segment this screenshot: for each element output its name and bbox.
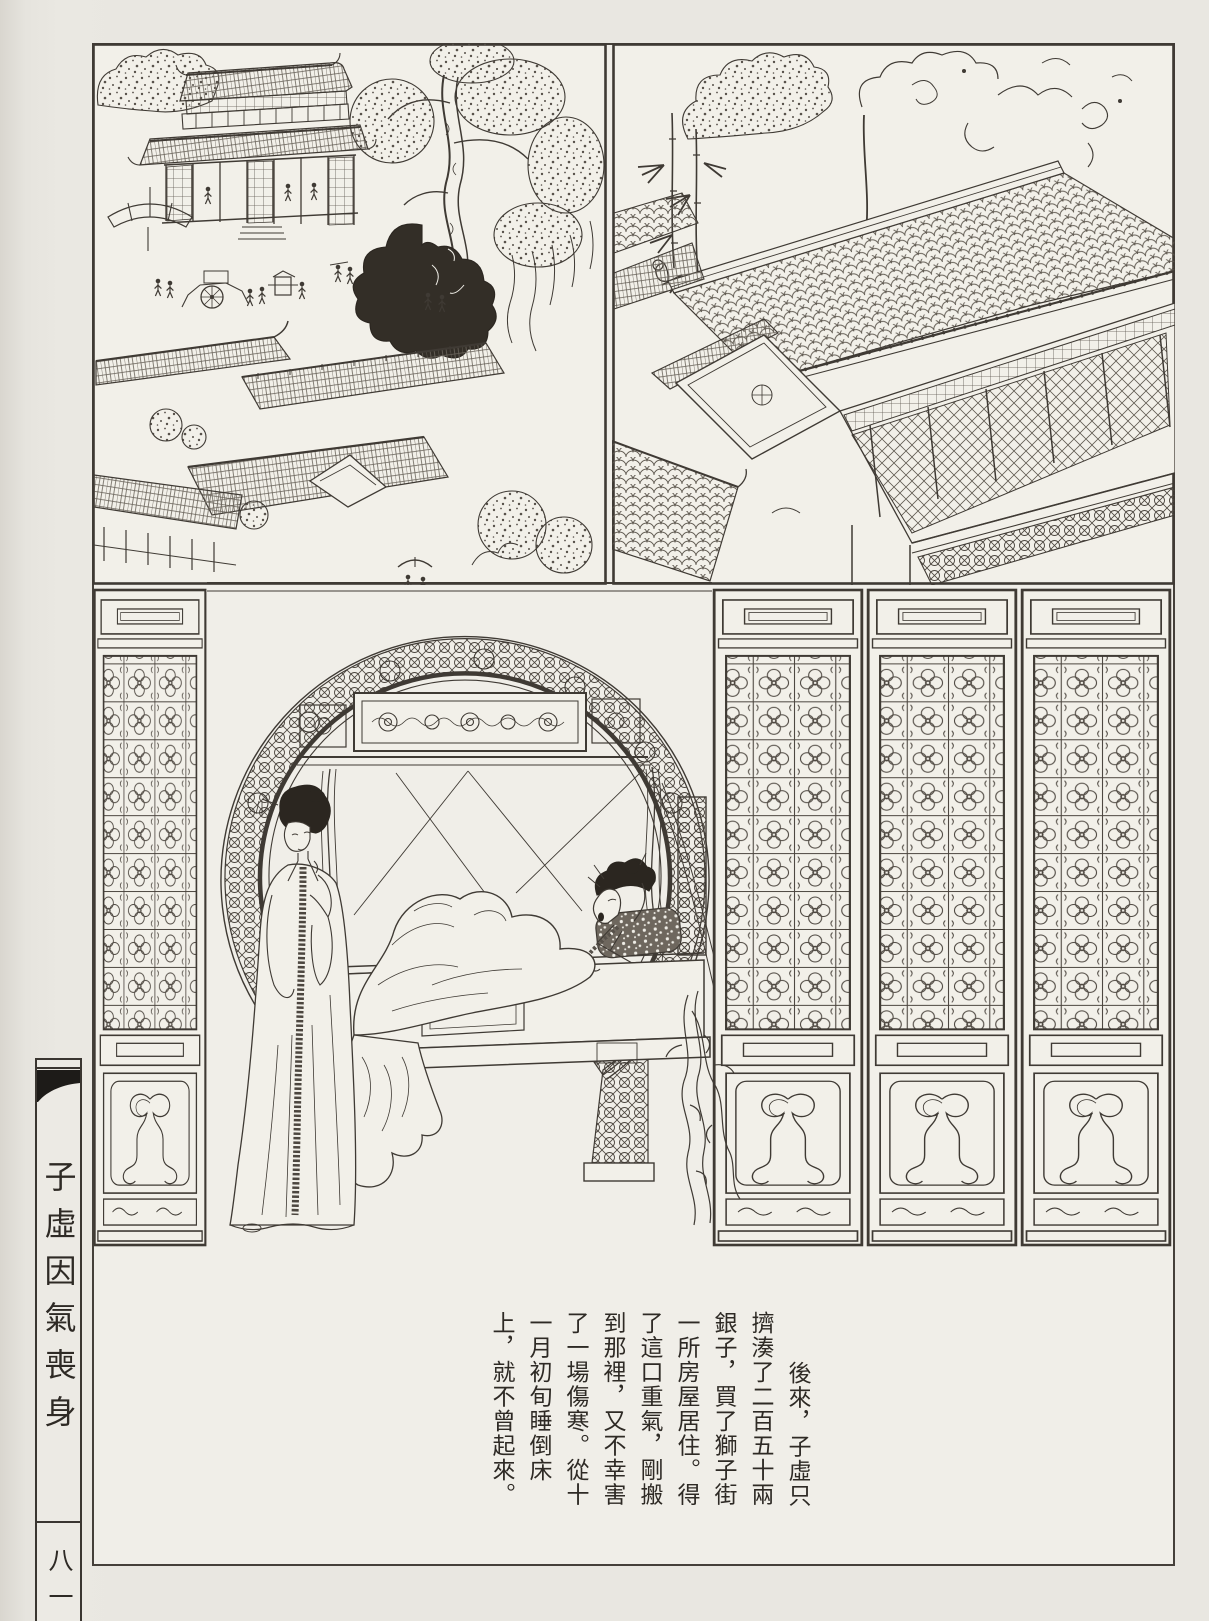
sidebar-title-strip: 子虛因氣喪身 八一: [35, 1058, 82, 1621]
caption-column: 到那裡，又不幸害: [601, 1311, 624, 1507]
caption-column: 後來，子虛只: [786, 1311, 809, 1508]
screen-panel-right-3: [1022, 590, 1170, 1245]
book-page: 後來，子虛只 擠湊了二百五十兩 銀子，買了獅子街 一所房屋居住。得 了這口重氣，…: [0, 0, 1209, 1621]
sidebar-top-rule: [37, 1067, 80, 1069]
screen-panel-right-2: [868, 590, 1016, 1245]
illustration-street-scene: [92, 43, 607, 585]
caption-column: 擠湊了二百五十兩: [749, 1311, 772, 1507]
illustration-sickbed-scene: [92, 565, 1175, 1257]
caption-column: 了一場傷寒。從十: [564, 1311, 587, 1507]
caption-column: 銀子，買了獅子街: [712, 1311, 735, 1507]
caption-column: 上，就不曾起來。: [490, 1311, 513, 1507]
caption-text: 後來，子虛只 擠湊了二百五十兩 銀子，買了獅子街 一所房屋居住。得 了這口重氣，…: [487, 1311, 809, 1536]
sidebar-divider: [37, 1521, 80, 1523]
series-title: 子虛因氣喪身: [43, 1160, 75, 1442]
caption-column: 一所房屋居住。得: [675, 1311, 698, 1507]
screen-panel-left: [95, 590, 206, 1245]
illustration-lion-street-house: [612, 43, 1175, 585]
screen-panel-right-1: [714, 590, 862, 1245]
caption-column: 了這口重氣，剛搬: [638, 1311, 661, 1507]
corner-fold-icon: [37, 1070, 80, 1102]
caption-column: 一月初旬睡倒床: [527, 1311, 550, 1483]
page-number: 八一: [46, 1547, 71, 1621]
